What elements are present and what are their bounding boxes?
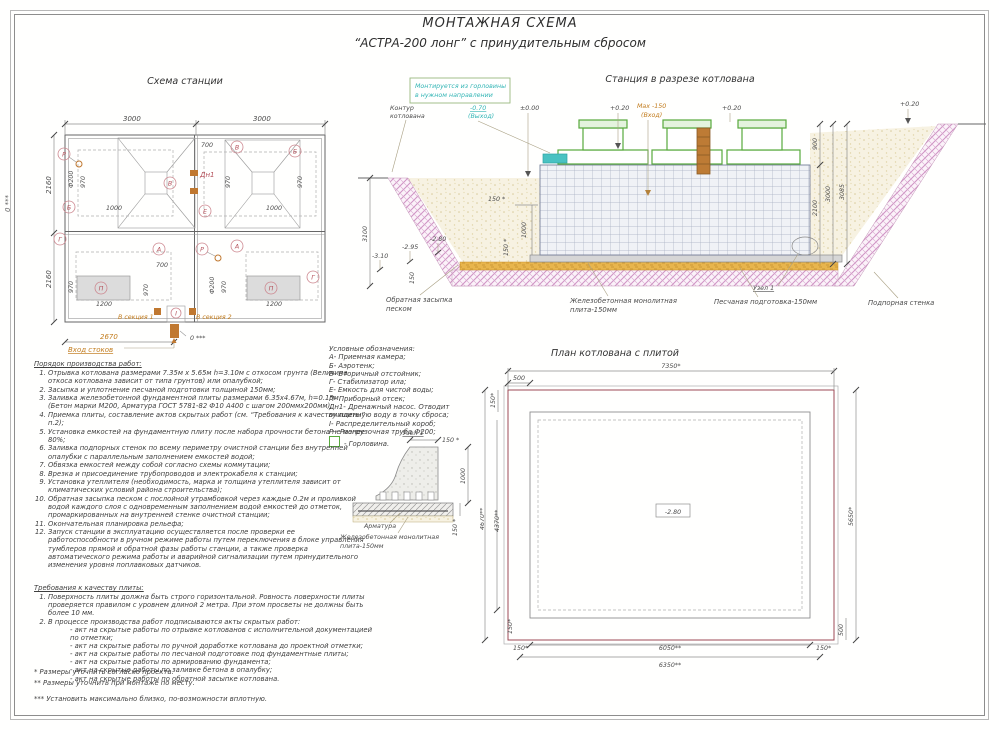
pit-dims-left: 150* 4670** 4370** 150* [480, 387, 514, 643]
footnote-2: ** Размеры уточнить при монтаже по месту… [34, 679, 374, 687]
act-item: - акт на скрытые работы по ручной дорабо… [70, 642, 382, 650]
svg-text:1200: 1200 [266, 301, 282, 308]
instrument-bay-left [77, 276, 130, 300]
work-item: Обвязка емкостей между собой согласно сх… [48, 461, 366, 469]
svg-text:2160: 2160 [45, 270, 53, 288]
svg-text:Железобетонная монолитная: Железобетонная монолитная [569, 297, 677, 305]
svg-text:В секция 1: В секция 1 [118, 314, 154, 321]
work-item: Окончательная планировка рельефа; [48, 520, 366, 528]
work-order-list: Отрывка котлована размерами 7.35м х 5.65… [34, 369, 366, 569]
work-order-title: Порядок производства работ: [34, 360, 366, 368]
svg-text:4370**: 4370** [494, 510, 501, 532]
svg-text:150 *: 150 * [503, 239, 510, 256]
work-item: Отрывка котлована размерами 7.35м х 5.65… [48, 369, 366, 385]
svg-text:970: 970 [221, 281, 228, 293]
work-item: Запуск станции в эксплуатацию осуществля… [48, 528, 366, 568]
tag-I: I [175, 311, 177, 318]
svg-text:3000: 3000 [825, 186, 832, 202]
svg-text:Ф200: Ф200 [209, 277, 216, 294]
svg-text:150*: 150* [490, 393, 497, 408]
svg-text:-3.10: -3.10 [372, 253, 388, 260]
plan-dims-top: 3000 3000 [62, 115, 328, 135]
svg-text:П: П [99, 286, 104, 293]
svg-text:150 *: 150 * [488, 196, 505, 203]
svg-text:150*: 150* [507, 619, 514, 634]
node-detail-title: Узел 1 [402, 430, 423, 437]
svg-text:700: 700 [156, 262, 168, 269]
svg-text:970: 970 [68, 281, 75, 293]
svg-text:-2.80: -2.80 [430, 236, 446, 243]
svg-text:А: А [234, 244, 239, 251]
pit-dims-right: 5650* 500 [838, 387, 859, 643]
footnote-3: *** Установить максимально близко, по-во… [34, 695, 374, 703]
svg-text:1000: 1000 [521, 222, 528, 238]
cross-section-drawing: Монтируется из горловины в нужном направ… [358, 74, 988, 319]
work-order: Порядок производства работ: Отрывка котл… [34, 360, 366, 569]
svg-text:2160: 2160 [45, 176, 53, 194]
svg-text:500: 500 [838, 624, 845, 636]
plate-req-item: Поверхность плиты должна быть строго гор… [48, 593, 382, 617]
svg-text:7350*: 7350* [661, 363, 680, 370]
svg-text:970: 970 [225, 176, 232, 188]
svg-text:Контур: Контур [390, 105, 414, 112]
svg-text:-2.80: -2.80 [665, 509, 681, 516]
svg-text:5650*: 5650* [848, 507, 855, 526]
svg-text:Вход стоков: Вход стоков [68, 346, 113, 354]
svg-text:2670: 2670 [100, 333, 118, 341]
svg-text:Г: Г [58, 237, 62, 244]
svg-text:(Вход): (Вход) [641, 112, 662, 119]
svg-text:+0.20: +0.20 [610, 105, 629, 112]
left-margin-zero-mark: 0 *** [4, 195, 12, 212]
svg-text:3000: 3000 [253, 115, 271, 123]
act-item: - акт на скрытые работы по отрывке котло… [70, 626, 382, 642]
work-item: Заливка железобетонной фундаментной плит… [48, 394, 366, 410]
svg-text:500: 500 [513, 375, 525, 382]
svg-text:В: В [235, 145, 239, 152]
note-box: Монтируется из горловины в нужном направ… [410, 78, 510, 103]
station-plan-drawing: I 3000 3000 2160 2160 Ф200 970 1000 700 … [28, 86, 358, 381]
work-item: Обратная засыпка песком с послойной утра… [48, 495, 366, 519]
plan-bottom-labels: В секция 1 В секция 2 2670 Вход стоков 0… [62, 314, 232, 354]
svg-text:Р: Р [62, 152, 66, 159]
svg-text:150 *: 150 * [442, 437, 459, 444]
svg-text:150 *: 150 * [452, 519, 459, 536]
plate-section [353, 503, 453, 516]
svg-text:150: 150 [409, 272, 416, 284]
svg-text:песком: песком [386, 305, 412, 313]
svg-text:Обратная засыпка: Обратная засыпка [386, 296, 452, 304]
svg-text:-2.95: -2.95 [402, 244, 418, 251]
svg-text:Узел 1: Узел 1 [753, 285, 774, 292]
svg-text:П: П [269, 286, 274, 293]
svg-text:4670**: 4670** [480, 508, 486, 530]
svg-text:3085: 3085 [839, 184, 846, 200]
svg-text:котлована: котлована [390, 113, 425, 120]
svg-text:+0.20: +0.20 [722, 105, 741, 112]
section-dim-left: 3100 [362, 175, 373, 289]
distribution-box: I [167, 306, 185, 322]
act-item: - акт на скрытые работы по армированию ф… [70, 658, 382, 666]
sand-under-plate [353, 516, 453, 522]
ladder [697, 128, 710, 174]
tank-lids [558, 120, 800, 164]
svg-text:±0.00: ±0.00 [520, 105, 539, 112]
svg-text:700: 700 [201, 142, 213, 149]
page-subtitle: “АСТРА-200 лонг” с принудительным сбросо… [280, 36, 720, 50]
work-item: Приемка плиты, составление актов скрытых… [48, 411, 366, 427]
svg-text:Max -150: Max -150 [637, 103, 666, 110]
footnotes: * Размеры уточнить согласно проекта. ** … [34, 668, 374, 705]
svg-text:1000: 1000 [106, 205, 122, 212]
svg-text:3000: 3000 [123, 115, 141, 123]
dashed-zone-tl [78, 150, 173, 216]
svg-text:В секция 2: В секция 2 [196, 314, 232, 321]
svg-text:150*: 150* [816, 645, 831, 652]
work-item: Установка утеплителя (необходимость, мар… [48, 478, 366, 494]
svg-text:Б: Б [67, 205, 71, 212]
svg-text:Арматура: Арматура [363, 523, 396, 530]
work-item: Врезка и присоединение трубопроводов и э… [48, 470, 366, 478]
svg-text:Р: Р [200, 247, 204, 254]
svg-text:Б: Б [293, 149, 297, 156]
svg-text:Г: Г [311, 275, 315, 282]
bottom-hatch-band [452, 270, 838, 286]
svg-text:Подпорная стенка: Подпорная стенка [868, 299, 934, 307]
svg-text:6350**: 6350** [659, 662, 681, 669]
svg-text:(Выход): (Выход) [468, 113, 494, 120]
footnote-1: * Размеры уточнить согласно проекта. [34, 668, 374, 676]
outlet-pipe [543, 154, 567, 163]
sand-prep-layer [460, 262, 838, 270]
svg-text:3100: 3100 [362, 226, 369, 242]
pit-dims-bottom: 150* 6050** 150* 6350** [513, 642, 831, 669]
svg-text:0 ***: 0 *** [190, 335, 205, 342]
svg-text:1000: 1000 [266, 205, 282, 212]
tank-mesh-body [540, 165, 810, 255]
svg-text:970: 970 [297, 176, 304, 188]
svg-text:плита-150мм: плита-150мм [570, 306, 617, 314]
drawing-sheet: МОНТАЖНАЯ СХЕМА “АСТРА-200 лонг” с прину… [0, 0, 999, 730]
tag-dn1: Дн1 [199, 171, 215, 179]
plate-req-title: Требования к качеству плиты: [34, 584, 382, 592]
svg-text:В: В [168, 181, 172, 188]
svg-text:в нужном направлении: в нужном направлении [415, 92, 493, 99]
plan-dims-left: 2160 2160 [45, 132, 57, 325]
hopper-top-left [118, 138, 195, 228]
act-item: - акт на скрытые работы по песчаной подг… [70, 650, 382, 658]
pit-plan-drawing: -2.80 7350* 500 150* 4670** 4370** 150* [480, 358, 980, 670]
svg-text:Е: Е [203, 209, 207, 216]
work-item: Заливка подпорных стенок по всему периме… [48, 444, 366, 460]
svg-text:900: 900 [812, 138, 819, 150]
svg-text:Песчаная подготовка-150мм: Песчаная подготовка-150мм [714, 298, 817, 306]
svg-text:Ф200: Ф200 [68, 171, 75, 188]
depth-mark: -2.80 [656, 504, 690, 517]
svg-text:1200: 1200 [96, 301, 112, 308]
svg-text:150*: 150* [513, 645, 528, 652]
svg-text:970: 970 [143, 284, 150, 296]
svg-text:-0.70: -0.70 [470, 105, 486, 112]
svg-text:1000: 1000 [460, 468, 467, 484]
svg-text:970: 970 [80, 176, 87, 188]
svg-text:6050**: 6050** [659, 645, 681, 652]
svg-text:А: А [156, 247, 161, 254]
legend-title: Условные обозначения: [329, 345, 489, 353]
svg-text:2100: 2100 [812, 200, 819, 216]
work-item: Установка емкостей на фундаментную плиту… [48, 428, 366, 444]
work-item: Засыпка и уплотнение песчаной подготовки… [48, 386, 366, 394]
page-title: МОНТАЖНАЯ СХЕМА [300, 16, 700, 31]
instrument-bay-right [247, 276, 300, 300]
svg-text:+0.20: +0.20 [900, 101, 919, 108]
svg-text:Монтируется из горловины: Монтируется из горловины [415, 83, 506, 90]
